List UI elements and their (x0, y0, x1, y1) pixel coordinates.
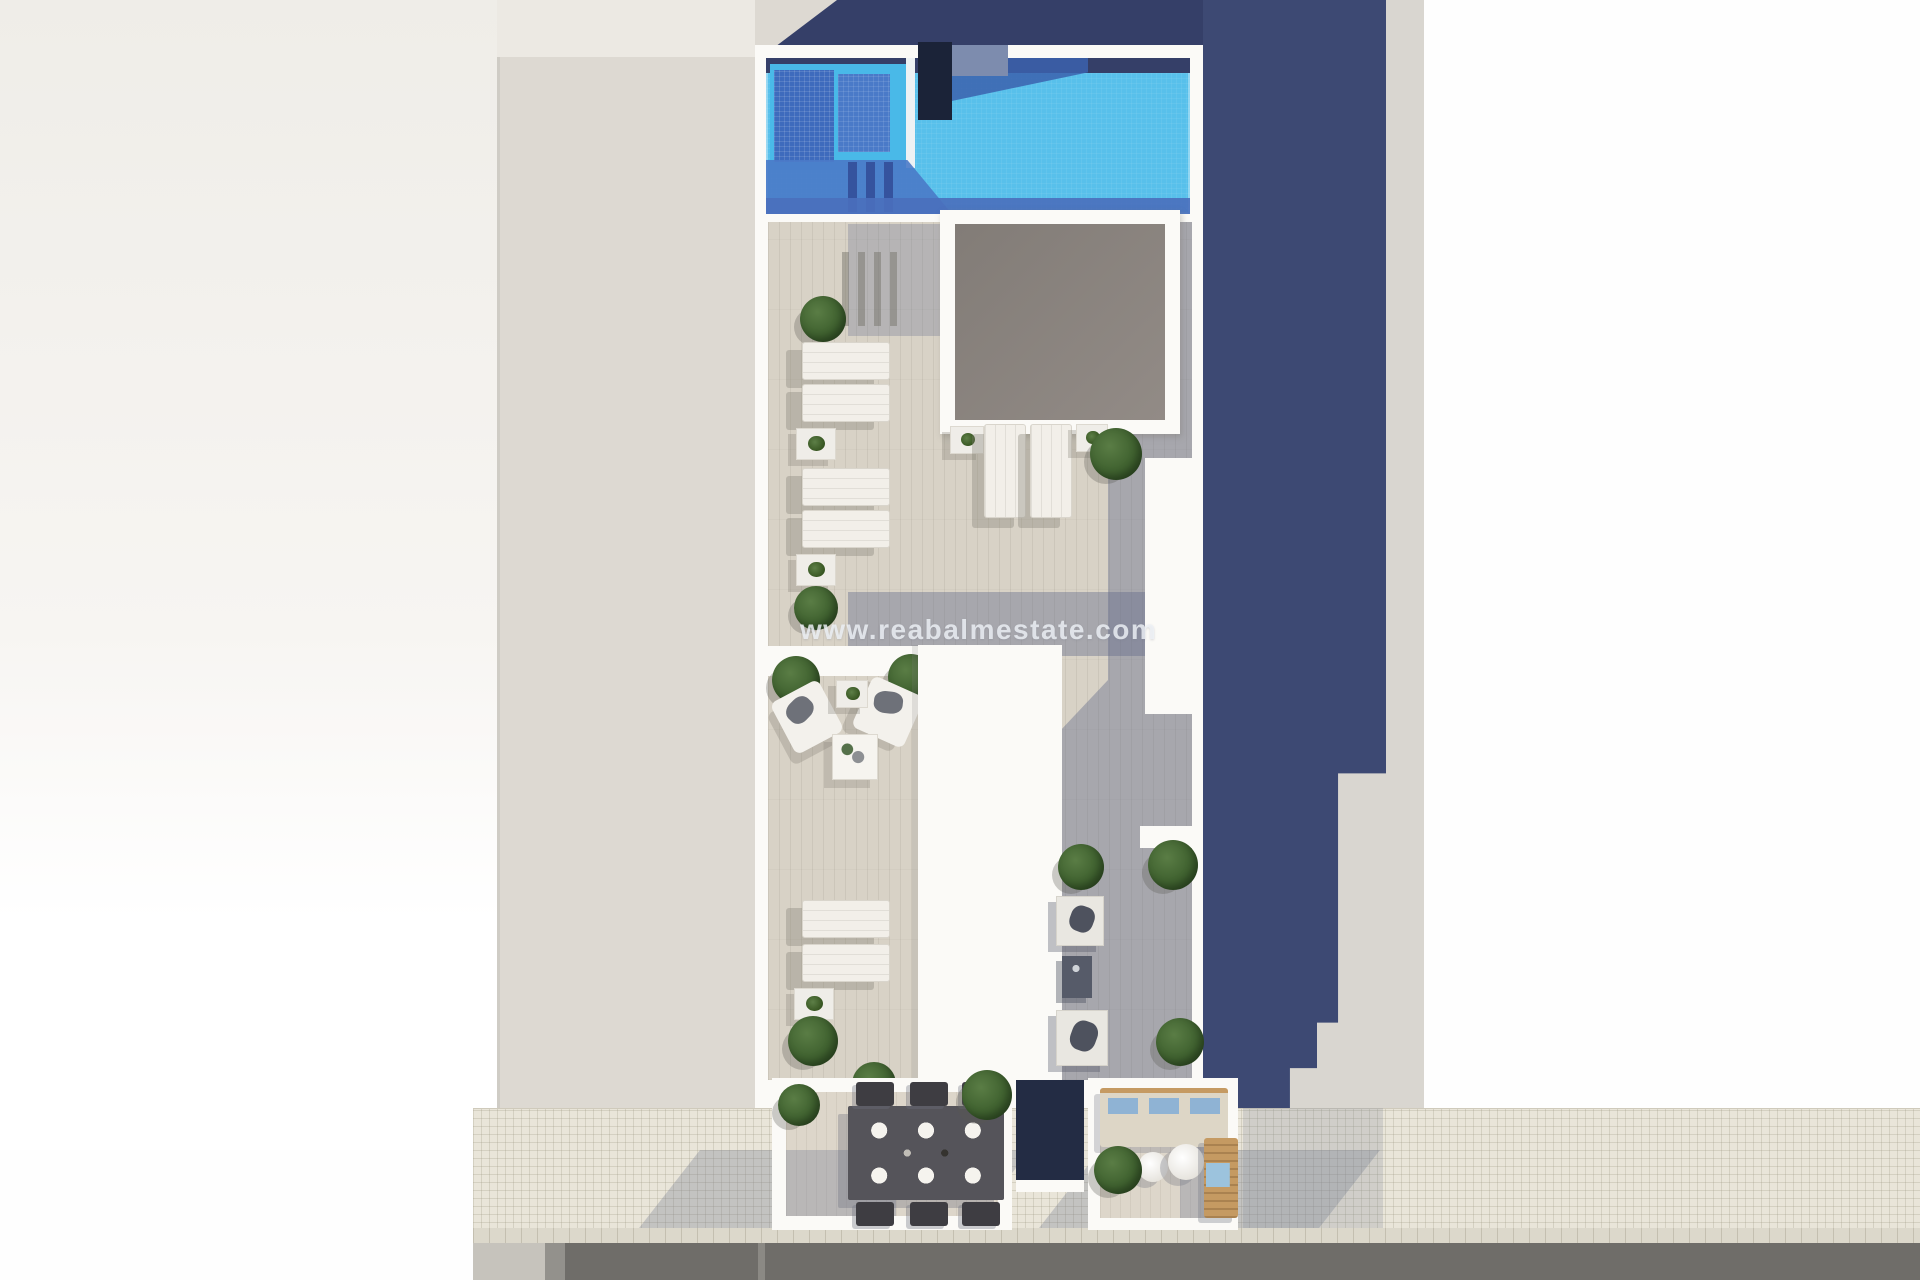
round-coffee-table (1168, 1144, 1204, 1180)
stair-bulkhead-roof (918, 645, 1062, 1081)
railing-shadow-3 (874, 252, 881, 326)
side-passage-edge (497, 57, 500, 1150)
planter-bush (788, 1016, 838, 1066)
daybed (1056, 1010, 1108, 1066)
rooftop-volume-right (1145, 458, 1195, 714)
dining-chair (962, 1202, 1000, 1226)
kids-pool-deep (774, 70, 834, 162)
sun-lounger (802, 900, 890, 938)
planter-bush (1156, 1018, 1204, 1066)
dining-chair (910, 1202, 948, 1226)
dining-chair (856, 1202, 894, 1226)
planter-bush (800, 296, 846, 342)
balcony-gap-void (1016, 1080, 1084, 1180)
curb-tiles (473, 1228, 1920, 1244)
road (473, 1243, 1920, 1280)
lounger-side-table (950, 426, 984, 454)
road-strip (545, 1243, 565, 1280)
side-passage-ground (497, 57, 755, 1150)
skylight-glass (955, 224, 1165, 420)
sun-lounger (802, 510, 890, 548)
planter-bush (778, 1084, 820, 1126)
dining-chair (856, 1082, 894, 1106)
watermark: www.reabalmestate.com (800, 614, 1157, 646)
pool-wall-block (952, 45, 1008, 76)
balcony-gap-sill (1016, 1180, 1084, 1192)
outdoor-shower-panel (918, 42, 952, 120)
neighbor-roof-left (0, 0, 500, 1150)
road-patch (473, 1243, 545, 1280)
railing-shadow-2 (858, 252, 865, 326)
round-coffee-table (1138, 1152, 1168, 1182)
lounger-side-table (836, 680, 868, 708)
railing-shadow-4 (890, 252, 897, 326)
sun-lounger (802, 384, 890, 422)
sun-lounger-vertical (984, 424, 1026, 518)
planter-bush (1148, 840, 1198, 890)
pool-divider-wall (906, 58, 915, 168)
lounger-side-table (796, 428, 836, 460)
planter-bush (1090, 428, 1142, 480)
dining-chair (910, 1082, 948, 1106)
patio-side-table (1062, 956, 1092, 998)
sun-lounger (802, 468, 890, 506)
coffee-table (832, 734, 878, 780)
building-shadow-on-sidewalk-corner (1243, 1108, 1383, 1228)
rooftop-solarium-render: www.reabalmestate.com (0, 0, 1920, 1280)
side-passage-parapet (497, 0, 755, 59)
daybed (1056, 896, 1104, 946)
sun-lounger (802, 944, 890, 982)
kids-pool-step (838, 74, 890, 152)
sun-lounger-vertical (1030, 424, 1072, 518)
dining-table (848, 1106, 1004, 1200)
road-marking (758, 1243, 765, 1280)
wooden-lounger (1204, 1138, 1238, 1218)
planter-bush (1058, 844, 1104, 890)
sun-lounger (802, 342, 890, 380)
planter-bush (962, 1070, 1012, 1120)
planter-bush (1094, 1146, 1142, 1194)
lounger-side-table (796, 554, 836, 586)
